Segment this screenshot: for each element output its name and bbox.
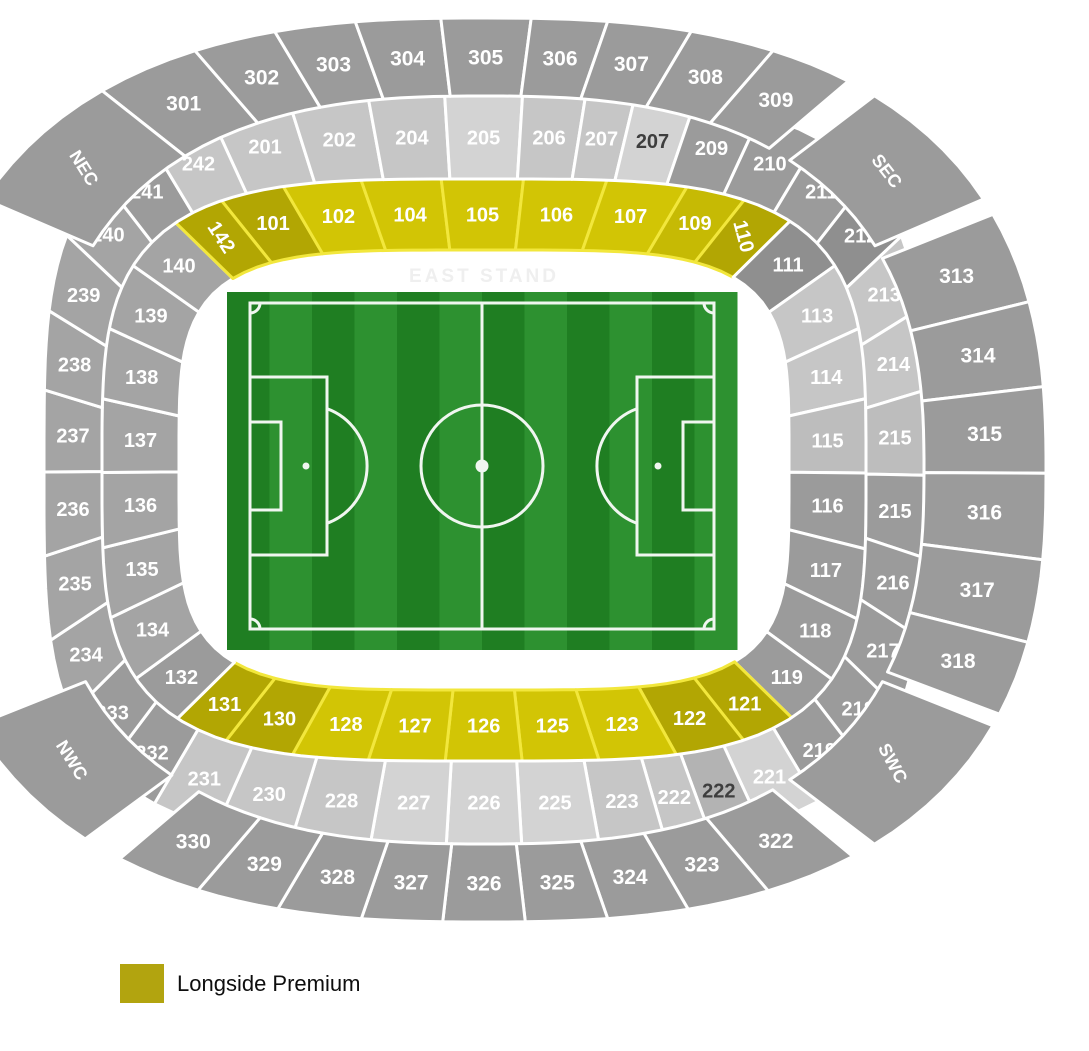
pitch-stripe	[652, 292, 695, 650]
legend-swatch	[120, 964, 164, 1003]
pitch	[227, 292, 738, 650]
legend: Longside Premium	[120, 964, 360, 1003]
pitch-stripe	[397, 292, 440, 650]
pitch-stripe	[270, 292, 313, 650]
pitch-stripe	[695, 292, 738, 650]
section-326[interactable]: 326	[443, 844, 526, 922]
section-315[interactable]: 315	[922, 387, 1046, 474]
stand-label-east: EAST STAND	[409, 266, 559, 287]
pitch-stripe	[482, 292, 525, 650]
pitch-stripe	[355, 292, 398, 650]
section-105[interactable]: 105	[441, 179, 523, 250]
section-205[interactable]: 205	[445, 96, 523, 179]
section-204[interactable]: 204	[368, 96, 450, 180]
pitch-stripe	[610, 292, 653, 650]
pitch-stripe	[440, 292, 483, 650]
section-226[interactable]: 226	[446, 761, 521, 844]
section-225[interactable]: 225	[517, 760, 600, 844]
pitch-stripe	[312, 292, 355, 650]
pitch-stripe	[567, 292, 610, 650]
legend-label: Longside Premium	[177, 971, 360, 997]
section-126[interactable]: 126	[445, 690, 522, 761]
stadium-seat-map: 1011021041051061071091101111131141151161…	[0, 0, 1089, 1051]
section-305[interactable]: 305	[441, 18, 531, 96]
pitch-stripe	[525, 292, 568, 650]
